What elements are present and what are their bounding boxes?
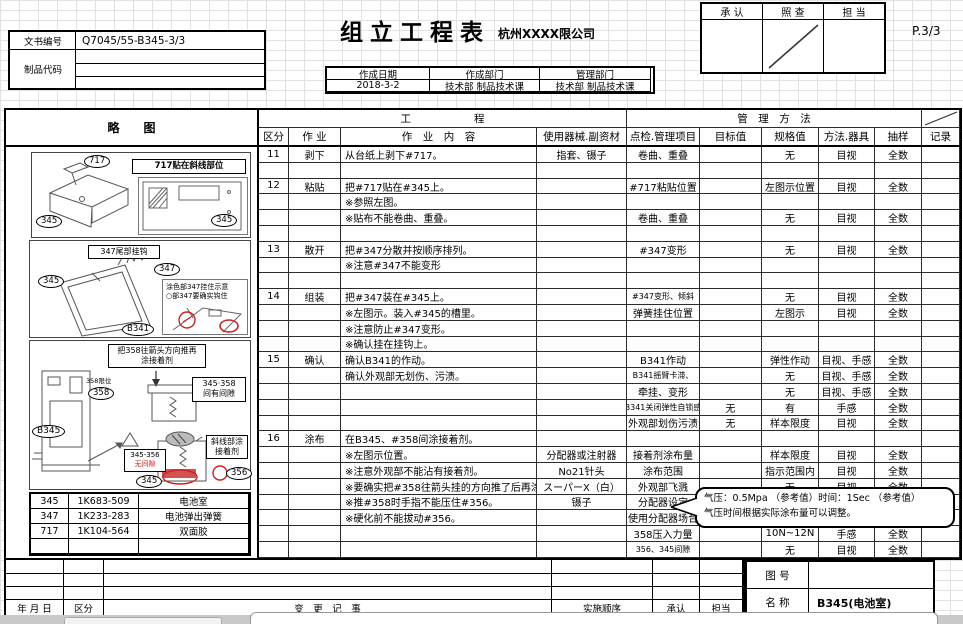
sketch-diagram-2-inset: 涂色部347挂住示意 ○部347要确实钩住 (162, 279, 248, 335)
hook-detail-drawing (163, 300, 247, 334)
process-cell: 牵挂、变形 (627, 384, 700, 400)
process-cell (259, 416, 289, 432)
process-cell: 指套、镊子 (537, 147, 627, 163)
process-cell (922, 447, 960, 463)
process-cell: 15 (259, 352, 289, 368)
process-cell: 无 (762, 147, 819, 163)
process-cell: 无 (700, 416, 762, 432)
process-cell (627, 258, 700, 274)
process-cell (700, 368, 762, 384)
revision-cell (6, 587, 64, 600)
parts-cell: 电池室 (139, 494, 249, 509)
process-cell (537, 321, 627, 337)
date-label: 作成日期 (327, 68, 430, 80)
revision-cell (700, 574, 743, 587)
push-callout-line1: 把358往箭头方向推再 (111, 346, 203, 356)
part-345-inset-label: 345 (211, 214, 237, 227)
callout-line1: 气压：0.5Mpa （参考值）时间：1Sec （参考值） (704, 492, 946, 507)
glue-area-box: 斜线部涂 接着剂 (206, 435, 248, 459)
no-gap-red-note: 无间隙 (127, 460, 163, 469)
process-cell: 目视 (819, 416, 875, 432)
process-cell (259, 368, 289, 384)
process-cell (875, 337, 922, 353)
doc-number-value: Q7045/55-B345-3/3 (82, 35, 185, 47)
process-cell: 外观部飞溅 (627, 479, 700, 495)
parts-cell: 1K683-509 (69, 494, 139, 509)
process-cell: 16 (259, 431, 289, 447)
process-cell: ※要确实把#358往箭头挂的方向推了后再涂 (341, 479, 537, 495)
background-window-tab[interactable] (64, 617, 222, 624)
process-cell (259, 258, 289, 274)
process-cell (259, 510, 289, 526)
part-717-label: 717 (84, 155, 110, 168)
sketch-diagram-2: 347尾部挂钩 345 347 B341 涂色部347挂住示意 ○部347要确实… (29, 240, 251, 338)
process-cell (762, 337, 819, 353)
parts-cell (69, 539, 139, 554)
process-cell (922, 179, 960, 195)
revision-cell (64, 560, 104, 574)
process-cell (875, 258, 922, 274)
process-cell (875, 273, 922, 289)
process-cell (259, 384, 289, 400)
process-cell (700, 147, 762, 163)
process-cell (289, 368, 341, 384)
approve-cell (702, 20, 763, 72)
process-cell (537, 416, 627, 432)
process-cell (537, 337, 627, 353)
process-cell (819, 337, 875, 353)
sketch-diagram-1: 717 345 717贴在斜线部位 345 (31, 152, 251, 238)
process-cell: ※左图示。装入#345的槽里。 (341, 305, 537, 321)
process-cell (627, 337, 700, 353)
process-cell: ※左图示位置。 (341, 447, 537, 463)
process-cell: 确认 (289, 352, 341, 368)
process-cell: 10N~12N (762, 526, 819, 542)
process-cell (700, 431, 762, 447)
part-345-label: 345 (36, 215, 62, 228)
dept-value: 技术部 制品技术课 (430, 80, 540, 92)
revision-table: 年 月 日区分变 更 记 事实施顺序承认担当 (4, 560, 745, 617)
process-cell (537, 226, 627, 242)
process-cell (537, 510, 627, 526)
process-cell (762, 258, 819, 274)
process-cell (922, 431, 960, 447)
revision-cell (64, 574, 104, 587)
process-cell (341, 384, 537, 400)
process-cell (627, 194, 700, 210)
process-cell: 12 (259, 179, 289, 195)
process-cell (289, 210, 341, 226)
process-cell (922, 384, 960, 400)
process-cell (700, 384, 762, 400)
process-cell (627, 163, 700, 179)
column-header: 点检.管理项目 (627, 128, 700, 147)
column-header: 使用器械.副资材 (537, 128, 627, 147)
revision-cell (104, 587, 552, 600)
process-cell: 手感 (819, 400, 875, 416)
process-cell (289, 510, 341, 526)
process-cell: ※注意防止#347变形。 (341, 321, 537, 337)
process-cell: 全数 (875, 463, 922, 479)
parts-cell: 双面胶 (139, 524, 249, 539)
process-cell: 涂布 (289, 431, 341, 447)
process-cell: 外观部划伤污渍 (627, 416, 700, 432)
process-cell: 全数 (875, 542, 922, 558)
process-cell: 13 (259, 242, 289, 258)
column-header: 作 业 内 容 (341, 128, 537, 147)
process-cell (537, 400, 627, 416)
process-cell: 弹簧挂住位置 (627, 305, 700, 321)
process-cell (922, 463, 960, 479)
process-cell: 目视、手感 (819, 352, 875, 368)
process-cell: 剥下 (289, 147, 341, 163)
process-cell: 目视 (819, 210, 875, 226)
process-cell (289, 542, 341, 558)
push-direction-callout: 把358往箭头方向推再 涂接着剂 (108, 344, 206, 368)
column-header: 方法.器具 (819, 128, 875, 147)
no-gap-parts: 345-356 (127, 451, 163, 460)
process-cell: 无 (700, 400, 762, 416)
process-cell: 把#347分散并按顺序排列。 (341, 242, 537, 258)
date-department-box: 作成日期 作成部门 管理部门 2018-3-2 技术部 制品技术课 技术部 制品… (325, 66, 655, 94)
process-cell: 涂布范围 (627, 463, 700, 479)
process-cell: 14 (259, 289, 289, 305)
process-cell (700, 242, 762, 258)
process-cell (289, 226, 341, 242)
revision-cell (6, 574, 64, 587)
revision-cell (64, 587, 104, 600)
process-cell (341, 226, 537, 242)
process-cell: ※硬化前不能拔动#356。 (341, 510, 537, 526)
gap-note-box: 345·358 间有间隙 (192, 377, 246, 402)
drawing-no-value (809, 562, 935, 589)
process-cell (537, 384, 627, 400)
process-cell (627, 431, 700, 447)
column-header: 目标值 (700, 128, 762, 147)
process-cell (289, 273, 341, 289)
process-cell (289, 321, 341, 337)
process-cell: 分配器或注射器 (537, 447, 627, 463)
company-name: 杭州XXXX限公司 (498, 25, 595, 42)
process-cell (922, 368, 960, 384)
revision-cell (552, 560, 653, 574)
process-cell: #347变形、倾斜 (627, 289, 700, 305)
diagonal-slash-icon (923, 110, 959, 127)
process-cell: ※注意#347不能变形 (341, 258, 537, 274)
process-cell (289, 305, 341, 321)
process-cell: 指示范围内 (762, 463, 819, 479)
process-cell (259, 194, 289, 210)
process-cell (875, 226, 922, 242)
process-cell (537, 431, 627, 447)
process-cell (700, 258, 762, 274)
process-cell: 11 (259, 147, 289, 163)
process-cell (922, 542, 960, 558)
process-cell (259, 526, 289, 542)
process-cell (819, 273, 875, 289)
glue-note-line1: 斜线部涂 (209, 437, 245, 447)
part-358-label: 358 (88, 387, 114, 400)
revision-cell (700, 587, 743, 600)
doc-number-label: 文书编号 (10, 32, 76, 50)
process-cell: 无 (762, 368, 819, 384)
process-cell (341, 416, 537, 432)
revision-cell (552, 574, 653, 587)
process-cell (700, 352, 762, 368)
sketch-panel: 略 图 717 345 717贴在斜线部位 (6, 110, 259, 558)
inset-title: 717贴在斜线部位 (132, 159, 246, 174)
process-cell (700, 463, 762, 479)
process-cell (289, 384, 341, 400)
revision-cell (653, 587, 700, 600)
process-cell: 目视 (819, 289, 875, 305)
process-cell (341, 163, 537, 179)
process-cell: 目视 (819, 542, 875, 558)
process-cell (762, 321, 819, 337)
process-cell: 目视 (819, 463, 875, 479)
process-cell: 样本限度 (762, 416, 819, 432)
parts-cell (139, 539, 249, 554)
process-cell (700, 194, 762, 210)
document-number-box: 文书编号 Q7045/55-B345-3/3 制品代码 (8, 30, 266, 90)
process-cell (922, 305, 960, 321)
process-cell: 全数 (875, 447, 922, 463)
process-cell (700, 163, 762, 179)
process-cell: 弹性作动 (762, 352, 819, 368)
process-cell: 356、345间隙 (627, 542, 700, 558)
process-cell: 在B345、#358间涂接着剂。 (341, 431, 537, 447)
process-cell (700, 273, 762, 289)
process-cell (922, 163, 960, 179)
process-cell (700, 526, 762, 542)
part-356-label: 356 (226, 467, 252, 480)
revision-cell (104, 574, 552, 587)
process-cell (922, 352, 960, 368)
record-slash-cell (922, 110, 960, 128)
charge-cell (824, 20, 884, 72)
process-cell: 组装 (289, 289, 341, 305)
dispenser-setting-callout: 气压：0.5Mpa （参考值）时间：1Sec （参考值） 气压时间根据实际涂布量… (695, 487, 955, 528)
process-group-header: 工 程 (259, 110, 627, 128)
process-cell (341, 542, 537, 558)
process-cell: 接着剂涂布量 (627, 447, 700, 463)
process-cell (922, 416, 960, 432)
process-cell (537, 258, 627, 274)
process-cell: 确认外观部无划伤、污渍。 (341, 368, 537, 384)
process-cell: 无 (762, 242, 819, 258)
column-header: 抽样 (875, 128, 922, 147)
process-cell (922, 210, 960, 226)
process-cell (259, 479, 289, 495)
process-cell: 全数 (875, 147, 922, 163)
divider (76, 76, 264, 77)
process-cell: 全数 (875, 384, 922, 400)
process-cell (922, 289, 960, 305)
process-cell (922, 337, 960, 353)
process-cell: 把#717贴在#345上。 (341, 179, 537, 195)
process-cell: 358压入力量 (627, 526, 700, 542)
process-cell: 从台纸上剥下#717。 (341, 147, 537, 163)
column-header: 记录 (922, 128, 960, 147)
process-cell (289, 194, 341, 210)
part-b341-label: B341 (122, 323, 154, 336)
part-345-label: 345 (136, 475, 162, 488)
revision-cell (104, 560, 552, 574)
process-cell: 全数 (875, 242, 922, 258)
mgmt-label: 管理部门 (540, 68, 651, 80)
process-cell: 卷曲、重叠 (627, 147, 700, 163)
process-cell: 全数 (875, 526, 922, 542)
process-cell (289, 163, 341, 179)
parts-cell (31, 539, 69, 554)
process-cell: 目视、手感 (819, 368, 875, 384)
process-cell (537, 210, 627, 226)
page-title: 组立工程表 (340, 13, 490, 47)
process-cell (922, 194, 960, 210)
no-gap-box: 345-356 无间隙 (124, 449, 166, 472)
process-cell: B341作动 (627, 352, 700, 368)
process-cell (259, 305, 289, 321)
process-cell (537, 179, 627, 195)
process-cell (922, 258, 960, 274)
process-cell: 全数 (875, 352, 922, 368)
process-cell: #717粘贴位置 (627, 179, 700, 195)
column-header: 区分 (259, 128, 289, 147)
process-cell (289, 526, 341, 542)
part-347-label: 347 (154, 263, 180, 276)
process-cell (819, 431, 875, 447)
parts-list-table: 3451K683-509电池室3471K233-283电池弹出弹簧7171K10… (29, 492, 251, 556)
process-cell: 左图示 (762, 305, 819, 321)
process-cell: 左图示位置 (762, 179, 819, 195)
process-cell: ※参照左图。 (341, 194, 537, 210)
mgmt-value: 技术部 制品技术课 (540, 80, 651, 92)
parts-cell: 717 (31, 524, 69, 539)
process-cell (289, 400, 341, 416)
process-cell (700, 210, 762, 226)
process-cell: 无 (762, 289, 819, 305)
process-cell (875, 194, 922, 210)
process-cell (700, 337, 762, 353)
process-cell (259, 447, 289, 463)
process-cell (819, 194, 875, 210)
process-cell (341, 400, 537, 416)
parts-cell: 347 (31, 509, 69, 524)
process-cell (259, 273, 289, 289)
process-cell (537, 163, 627, 179)
process-cell: 镊子 (537, 495, 627, 511)
process-cell (259, 495, 289, 511)
charge-label: 担 当 (824, 4, 884, 20)
process-cell: 无 (762, 210, 819, 226)
revision-cell (700, 560, 743, 574)
process-cell (289, 495, 341, 511)
process-cell (922, 526, 960, 542)
callout-line2: 气压时间根据实际涂布量可以调整。 (704, 507, 946, 522)
process-cell: 全数 (875, 368, 922, 384)
process-cell (922, 400, 960, 416)
process-cell (700, 226, 762, 242)
date-value: 2018-3-2 (327, 80, 430, 92)
process-cell (537, 289, 627, 305)
process-cell: ※注意外观部不能沾有接着剂。 (341, 463, 537, 479)
process-cell (627, 273, 700, 289)
process-cell: 散开 (289, 242, 341, 258)
revision-cell (653, 560, 700, 574)
drawing-title-block: 图 号 名 称 B345(电池室) (745, 560, 935, 618)
process-cell: 全数 (875, 305, 922, 321)
gap-note-line1: 345·358 (195, 379, 243, 389)
process-cell (289, 337, 341, 353)
parts-cell: 345 (31, 494, 69, 509)
background-window-edge[interactable] (250, 612, 938, 624)
process-cell (875, 163, 922, 179)
process-cell (537, 305, 627, 321)
dept-label: 作成部门 (430, 68, 540, 80)
glue-note-line2: 接着剂 (209, 447, 245, 457)
process-cell: #347变形 (627, 242, 700, 258)
process-cell (819, 163, 875, 179)
sketch-diagram-3: 把358往箭头方向推再 涂接着剂 358限位 358 345·358 间有间隙 … (29, 340, 251, 490)
process-cell: 全数 (875, 210, 922, 226)
parts-cell: 电池弹出弹簧 (139, 509, 249, 524)
process-cell: 手感 (819, 526, 875, 542)
callout-pointer-icon (668, 495, 698, 519)
process-cell (537, 526, 627, 542)
process-cell: 确认B341的作动。 (341, 352, 537, 368)
process-cell (259, 226, 289, 242)
process-cell (700, 289, 762, 305)
check-label: 照 查 (763, 4, 824, 20)
process-cell (259, 321, 289, 337)
process-cell: B341摇臂卡滞、 (627, 368, 700, 384)
process-cell: 样本限度 (762, 447, 819, 463)
process-cell (289, 416, 341, 432)
process-cell: 目视 (819, 305, 875, 321)
process-cell (922, 147, 960, 163)
process-cell (537, 352, 627, 368)
revision-cell (6, 560, 64, 574)
parts-cell: 1K104-564 (69, 524, 139, 539)
revision-cell (552, 587, 653, 600)
process-cell: 把#347装在#345上。 (341, 289, 537, 305)
process-cell (762, 163, 819, 179)
process-cell: スーパーX（白） (537, 479, 627, 495)
hook-callout: 347尾部挂钩 (88, 245, 160, 259)
process-cell (819, 258, 875, 274)
process-cell: 全数 (875, 416, 922, 432)
process-cell (259, 400, 289, 416)
process-cell (289, 447, 341, 463)
process-cell (762, 273, 819, 289)
process-cell (700, 447, 762, 463)
column-header: 规格值 (762, 128, 819, 147)
approve-label: 承 认 (702, 4, 763, 20)
process-cell: 全数 (875, 400, 922, 416)
process-cell (875, 431, 922, 447)
process-cell: 无 (762, 542, 819, 558)
process-cell (537, 273, 627, 289)
process-cell (341, 273, 537, 289)
diagonal-slash-icon (763, 20, 824, 72)
358-position-note: 358限位 (86, 375, 111, 385)
process-cell (700, 321, 762, 337)
process-cell (762, 194, 819, 210)
sketch-title: 略 图 (6, 110, 257, 147)
check-cell (763, 20, 824, 72)
revision-cell (653, 574, 700, 587)
process-cell (341, 526, 537, 542)
